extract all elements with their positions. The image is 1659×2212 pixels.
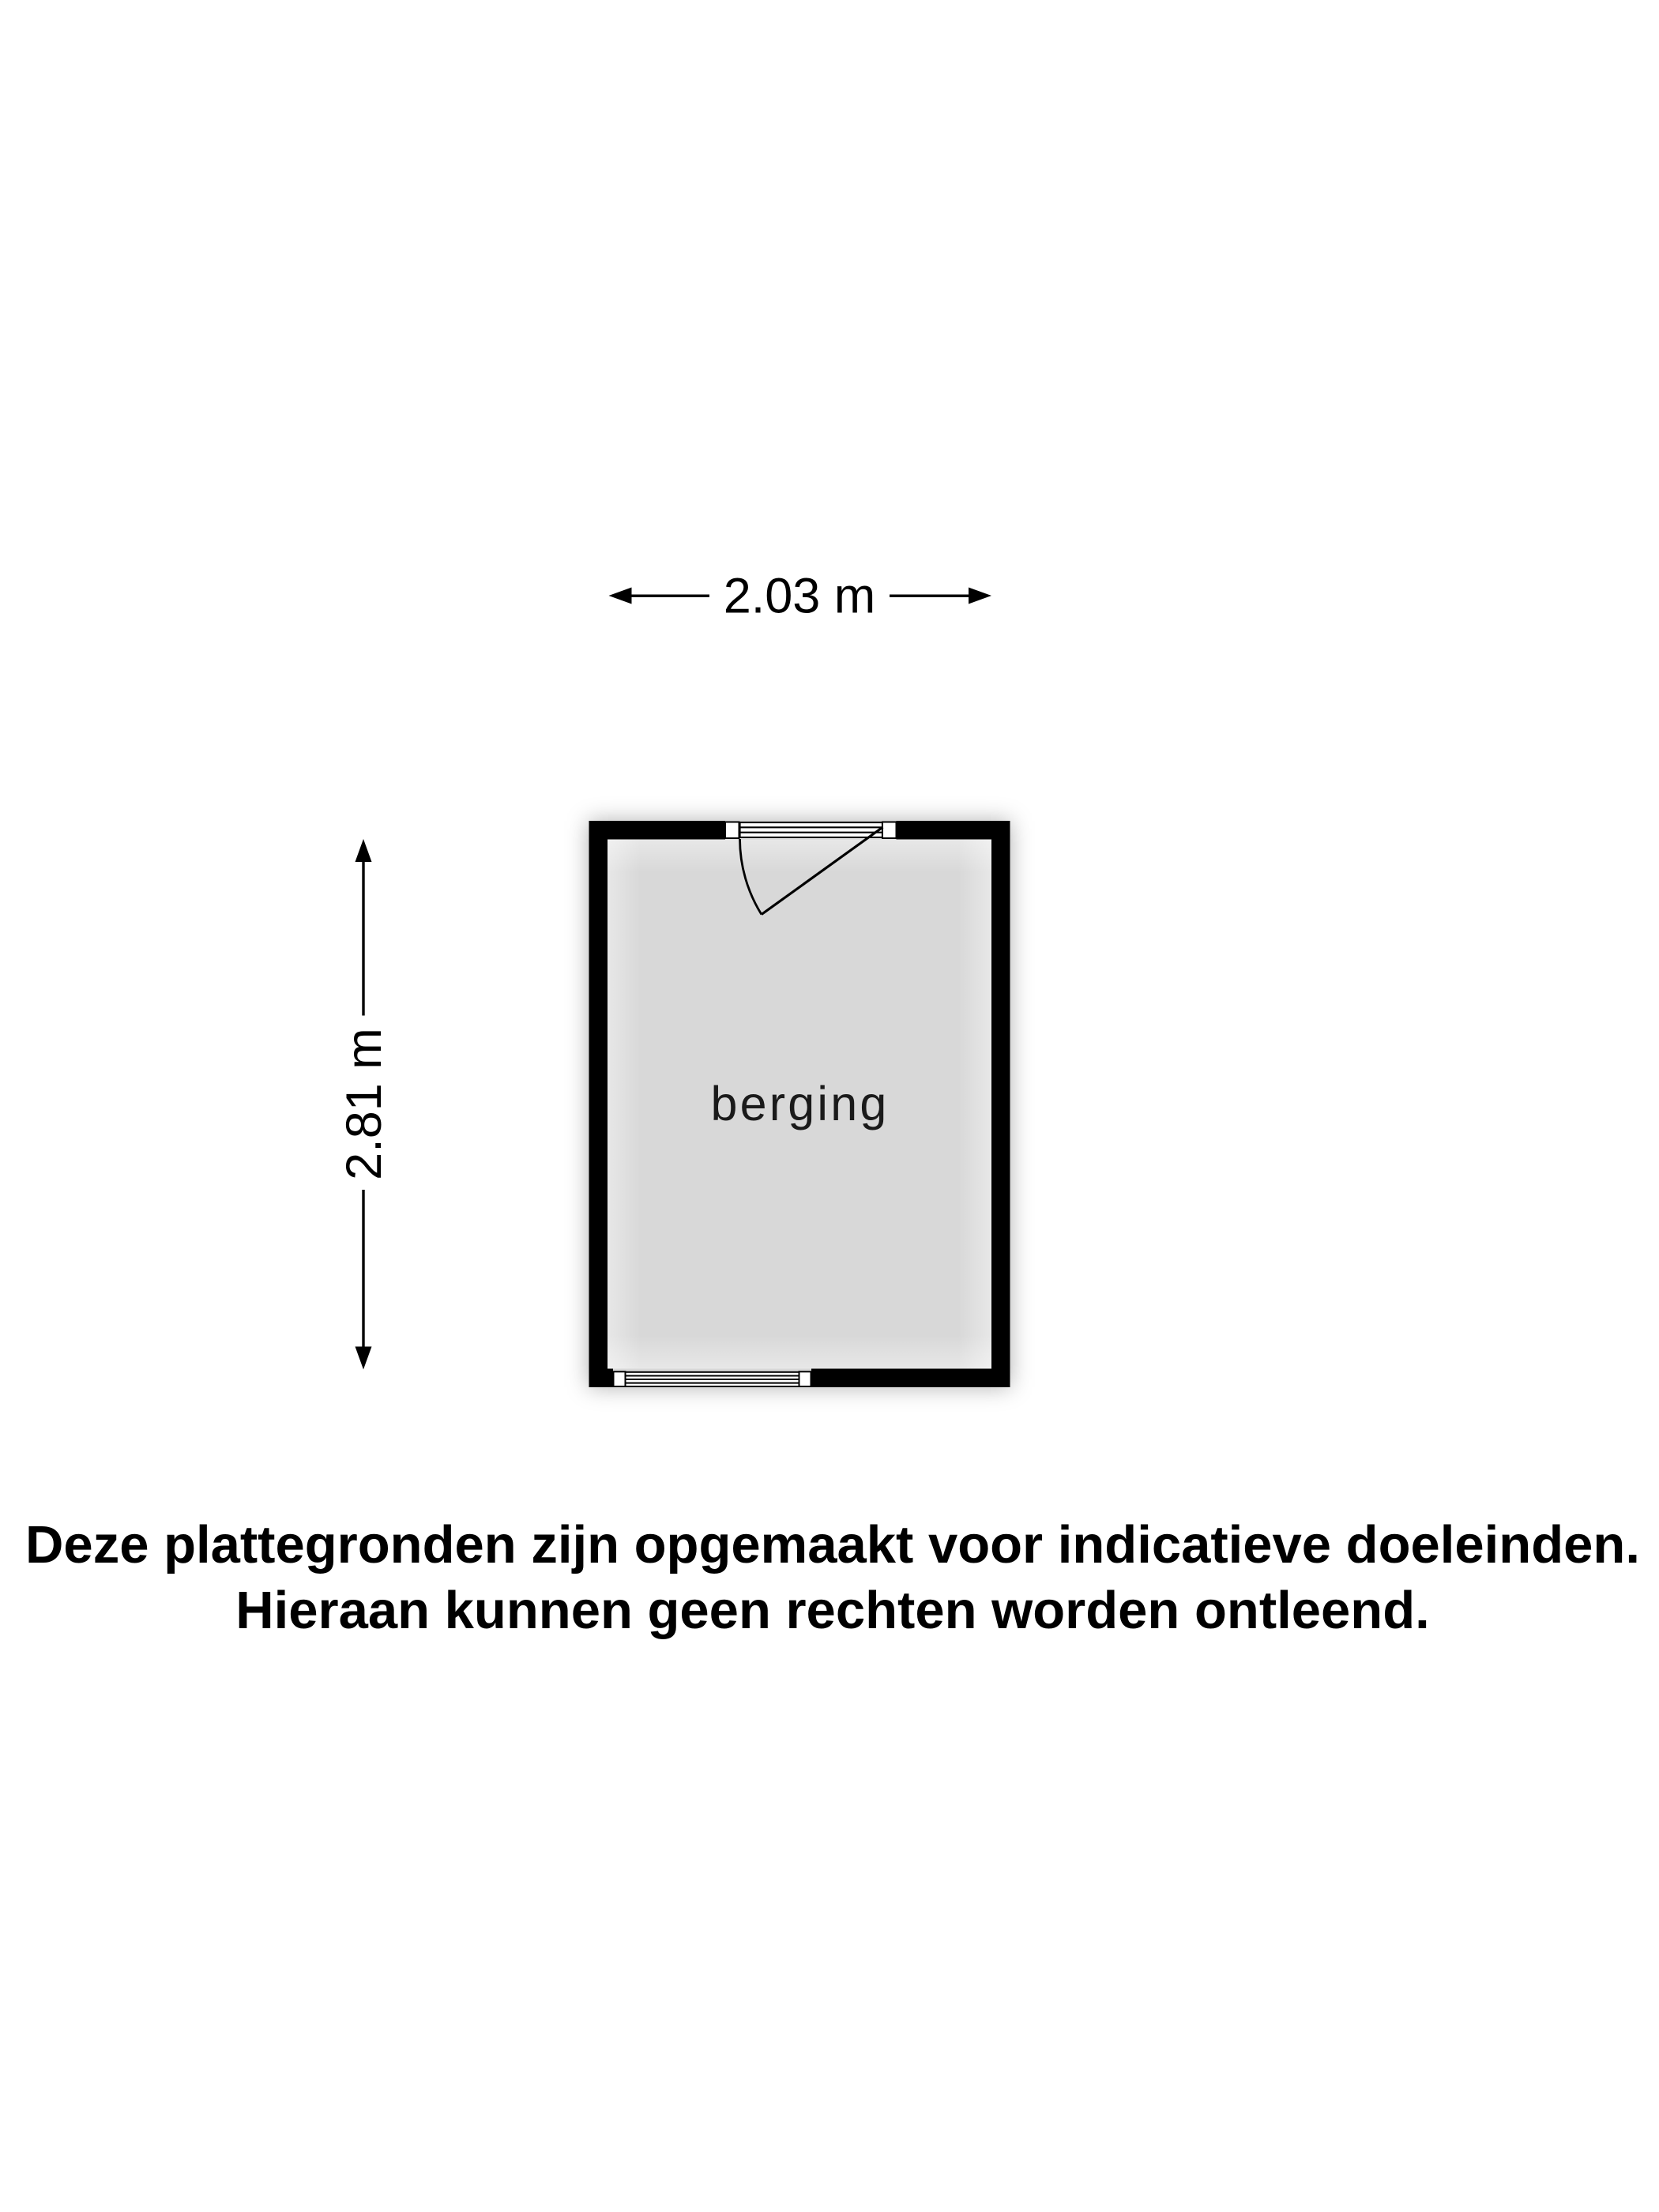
svg-text:2.03 m: 2.03 m [724,569,876,624]
svg-text:berging: berging [711,1077,890,1130]
svg-text:Deze plattegronden zijn opgema: Deze plattegronden zijn opgemaakt voor i… [25,1515,1640,1574]
svg-text:2.81 m: 2.81 m [337,1028,392,1180]
svg-text:Hieraan kunnen geen rechten wo: Hieraan kunnen geen rechten worden ontle… [235,1581,1430,1640]
